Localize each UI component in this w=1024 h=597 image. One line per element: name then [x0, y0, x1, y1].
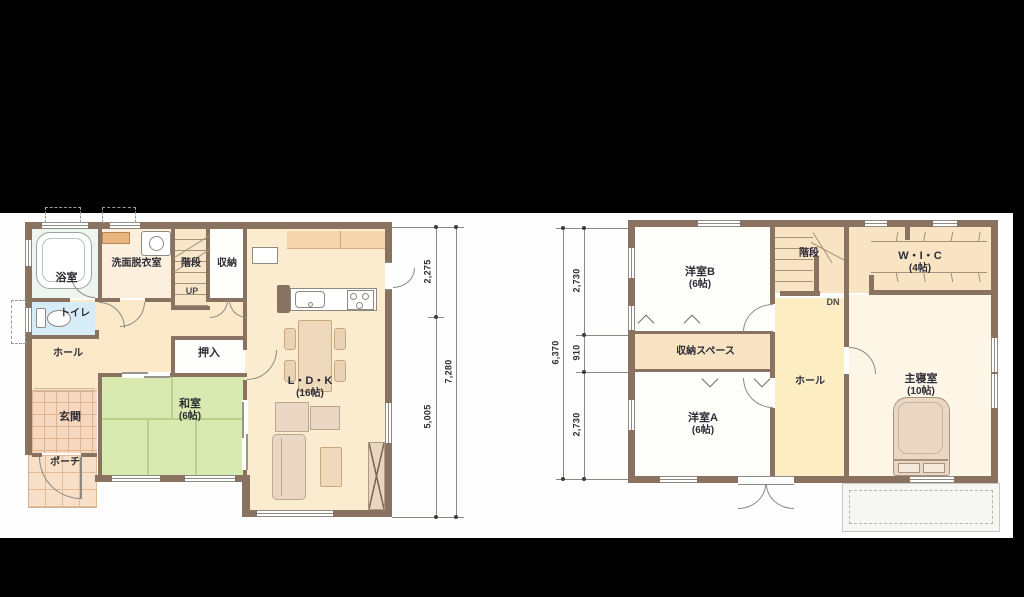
window: [42, 222, 88, 229]
coffee-table: [320, 447, 342, 487]
window: [185, 475, 235, 482]
bedroom-a-name: 洋室A: [668, 412, 738, 425]
sliding-door-leaf: [144, 376, 170, 378]
room-label-ldk: L・D・K (16帖): [275, 375, 345, 400]
burner: [362, 293, 369, 300]
wall: [770, 227, 775, 304]
wall: [869, 275, 874, 290]
bedroom-b-name: 洋室B: [665, 266, 735, 279]
wall: [869, 290, 991, 295]
room-label-hall-2f: ホール: [786, 376, 834, 388]
dimension-dot: [454, 515, 458, 519]
dimension-value: 910: [572, 331, 583, 375]
dimension-dot: [582, 333, 586, 337]
room-label-genkan: 玄関: [45, 411, 95, 424]
dimension-value: 2,730: [572, 403, 583, 447]
stove: [347, 290, 374, 310]
screenshot: 浴室 洗面脱衣室 階段 収納 UP トイレ ホール 押入 和室 (6帖) 玄関 …: [0, 0, 1024, 597]
dimension-value: 5,005: [423, 395, 434, 439]
washitsu-name: 和室: [160, 398, 220, 411]
room-label-oshiire: 押入: [184, 347, 234, 360]
dimension-dot: [582, 477, 586, 481]
ldk-name: L・D・K: [275, 375, 345, 388]
wall: [98, 373, 102, 482]
dimension-line: [556, 479, 630, 480]
wall: [243, 380, 247, 400]
window: [698, 220, 740, 227]
window: [25, 308, 32, 332]
second-floor-plan: 洋室B (6帖) 階段 DN W・I・C (4帖) 収納スペース ホール 洋室A…: [628, 220, 998, 483]
living-cabinet: [310, 406, 340, 430]
dimension-value: 2,730: [572, 259, 583, 303]
window: [910, 476, 954, 483]
eave-outline: [102, 207, 136, 223]
wall: [171, 336, 245, 340]
room-washitsu: [100, 375, 245, 479]
balcony-outline: [842, 483, 1000, 532]
sliding-door-leaf: [122, 372, 148, 374]
window: [660, 476, 697, 483]
wic-hanger-rod: [871, 232, 987, 242]
window: [865, 220, 887, 227]
ldk-size: (16帖): [275, 388, 345, 400]
bed-foot-panel: [898, 463, 920, 473]
window: [628, 306, 635, 330]
room-label-storage-space: 収納スペース: [653, 346, 758, 358]
eave-outline: [45, 207, 81, 223]
sliding-door-leaf: [242, 402, 244, 438]
window: [257, 510, 333, 517]
first-floor-plan: 浴室 洗面脱衣室 階段 収納 UP トイレ ホール 押入 和室 (6帖) 玄関 …: [25, 222, 392, 517]
bed-foot-panel: [923, 463, 945, 473]
window: [110, 222, 140, 229]
counter-end-wall: [277, 285, 290, 313]
burner: [356, 302, 363, 309]
stairs-dn-label: DN: [818, 297, 848, 308]
tatami-line: [147, 419, 149, 477]
window: [25, 240, 32, 266]
wall: [171, 336, 175, 376]
window: [112, 475, 160, 482]
washroom-shelf: [102, 232, 130, 244]
master-name: 主寝室: [886, 373, 956, 386]
living-cabinet: [275, 402, 309, 432]
chair: [284, 328, 296, 350]
bed-mattress: [898, 402, 943, 454]
refrigerator: [252, 247, 278, 264]
room-label-bedroom-b: 洋室B (6帖): [665, 266, 735, 291]
genkan-step: [34, 388, 95, 389]
window: [628, 400, 635, 430]
burner: [350, 293, 357, 300]
kitchen-door-opening: [385, 262, 392, 290]
dimension-line: [556, 228, 630, 229]
window: [991, 374, 998, 408]
wall: [905, 227, 910, 240]
sink-drain: [308, 302, 313, 307]
wic-size: (4帖): [875, 263, 965, 275]
room-label-master: 主寝室 (10帖): [886, 373, 956, 398]
window: [991, 338, 998, 372]
wall: [844, 227, 849, 347]
eave-outline: [11, 300, 26, 344]
toilet-tank: [36, 308, 46, 328]
room-label-wic: W・I・C (4帖): [875, 250, 965, 275]
wall: [243, 229, 247, 350]
room-label-stairs-1f: 階段: [170, 258, 212, 270]
dimension-dot: [582, 370, 586, 374]
dimension-dot: [561, 226, 565, 230]
washbasin: [141, 231, 171, 256]
dimension-dot: [454, 225, 458, 229]
wall: [95, 330, 99, 339]
wall: [171, 306, 210, 310]
room-label-porch: ポーチ: [35, 457, 95, 469]
tall-cabinet: [368, 442, 385, 510]
stairs-up-label: UP: [177, 286, 207, 297]
wall: [844, 374, 849, 476]
bedroom-b-size: (6帖): [665, 279, 735, 291]
wall: [170, 373, 247, 377]
dimension-line: [584, 228, 585, 479]
window: [385, 403, 392, 443]
dimension-line: [456, 227, 457, 517]
genkan-step: [34, 391, 95, 392]
balcony-inner-dash: [849, 490, 993, 524]
dimension-value: 7,280: [444, 350, 455, 394]
tatami-line: [195, 419, 197, 477]
master-size: (10帖): [886, 386, 956, 398]
sofa: [272, 434, 306, 500]
stair-rail-wall: [780, 291, 820, 296]
dimension-dot: [434, 225, 438, 229]
sofa-seat-line: [281, 438, 305, 496]
sliding-door-leaf: [246, 434, 248, 470]
wic-name: W・I・C: [875, 250, 965, 263]
window: [933, 220, 957, 227]
dimension-dot: [434, 315, 438, 319]
dimension-value: 6,370: [551, 331, 562, 375]
dimension-dot: [582, 226, 586, 230]
washbasin-bowl: [149, 236, 164, 251]
dimension-dot: [434, 515, 438, 519]
room-label-bath: 浴室: [39, 272, 94, 285]
dimension-value: 2,275: [423, 250, 434, 294]
washitsu-size: (6帖): [160, 411, 220, 423]
window: [628, 248, 635, 278]
wall: [770, 408, 775, 476]
wall: [635, 369, 773, 372]
wall: [145, 298, 173, 302]
cabinet-divider: [340, 231, 341, 249]
room-label-toilet: トイレ: [51, 308, 99, 320]
room-label-stairs-2f: 階段: [784, 248, 834, 260]
dimension-dot: [561, 477, 565, 481]
room-label-washitsu: 和室 (6帖): [160, 398, 220, 423]
room-label-washroom: 洗面脱衣室: [100, 258, 173, 270]
wall: [32, 335, 95, 339]
bedroom-a-size: (6帖): [668, 425, 738, 437]
dimension-line: [563, 228, 564, 479]
stair-rail-wall: [814, 256, 819, 291]
kitchen-cabinets: [287, 231, 385, 249]
wall: [32, 298, 70, 302]
room-label-hall-1f: ホール: [43, 348, 93, 360]
dimension-line: [436, 227, 437, 517]
chair: [334, 328, 346, 350]
bed-foot-line: [894, 459, 948, 461]
porch-edge: [28, 455, 29, 508]
porch-edge: [28, 507, 97, 508]
room-label-storage-1f: 収納: [208, 258, 246, 270]
room-label-bedroom-a: 洋室A (6帖): [668, 412, 738, 437]
bed: [893, 397, 950, 476]
